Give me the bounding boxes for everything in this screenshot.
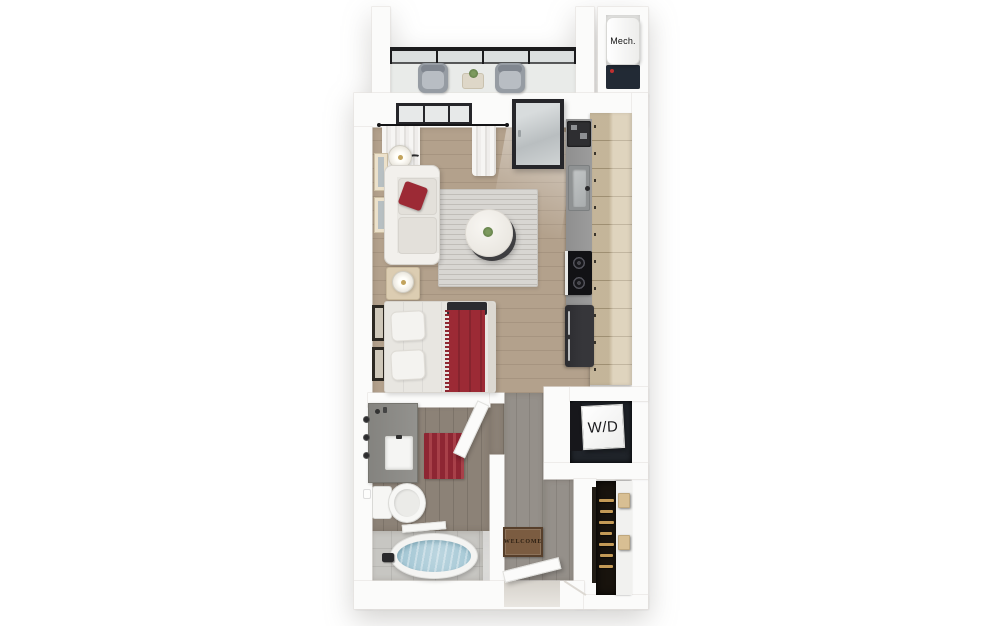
toilet-bowl bbox=[388, 483, 426, 523]
sink-faucet bbox=[396, 435, 402, 439]
stove-cooktop bbox=[565, 251, 592, 295]
appliance-detail bbox=[571, 125, 577, 130]
bathroom-sink bbox=[385, 436, 413, 470]
clothes-hanger bbox=[600, 532, 612, 535]
sink-basin bbox=[572, 169, 586, 207]
sofa-arm bbox=[385, 253, 439, 264]
coffee-maker bbox=[567, 121, 591, 147]
window-mullion bbox=[448, 106, 450, 122]
railing-post bbox=[574, 47, 576, 64]
wall bbox=[490, 393, 504, 403]
kitchen-sink bbox=[568, 165, 590, 211]
sink-faucet bbox=[585, 186, 590, 191]
welcome-mat: WELCOME bbox=[503, 527, 543, 557]
storage-box bbox=[618, 493, 630, 508]
sofa-arm bbox=[385, 166, 439, 177]
clothes-hanger bbox=[599, 521, 614, 524]
bathroom-vanity bbox=[368, 403, 418, 483]
bathtub bbox=[390, 533, 478, 579]
closet-door-gap bbox=[592, 487, 596, 583]
front-door-threshold bbox=[504, 581, 560, 607]
chair-seat-cushion bbox=[422, 71, 444, 89]
door-handle bbox=[518, 130, 521, 137]
wall-fixture bbox=[364, 417, 369, 422]
bathroom-door-threshold bbox=[490, 403, 504, 455]
bed-pillow bbox=[390, 349, 426, 381]
wall bbox=[544, 463, 648, 479]
toilet-seat bbox=[394, 489, 420, 517]
railing-post bbox=[528, 47, 530, 64]
sofa bbox=[384, 165, 440, 265]
bed-pillow bbox=[390, 310, 426, 342]
chair-seat-cushion bbox=[499, 71, 521, 89]
red-valve bbox=[610, 69, 614, 73]
bed-frame-edge bbox=[488, 302, 495, 392]
wall-fixture bbox=[364, 435, 369, 440]
refrigerator bbox=[565, 305, 594, 367]
kitchen-cabinets bbox=[590, 113, 632, 385]
window-mullion bbox=[423, 106, 425, 122]
table-lamp bbox=[392, 271, 414, 293]
welcome-mat-text: WELCOME bbox=[504, 539, 542, 545]
vanity-accessory bbox=[383, 407, 387, 413]
art-canvas bbox=[375, 350, 383, 378]
fridge-handle bbox=[568, 339, 570, 361]
railing-post bbox=[482, 47, 484, 64]
railing-post bbox=[390, 47, 392, 64]
sofa-back bbox=[385, 166, 397, 264]
curtain-rod-finial bbox=[377, 123, 381, 127]
sofa-cushion bbox=[398, 217, 437, 254]
wall bbox=[354, 127, 372, 609]
curtain-rod-finial bbox=[505, 123, 509, 127]
bath-water bbox=[397, 540, 471, 572]
window bbox=[396, 103, 472, 125]
washer-dryer-stack: W/D bbox=[581, 404, 625, 450]
railing-post bbox=[436, 47, 438, 64]
wd-label: W/D bbox=[587, 418, 619, 437]
clothes-hanger bbox=[599, 499, 614, 502]
red-throw-blanket bbox=[449, 310, 485, 392]
clothes-hanger bbox=[599, 565, 613, 568]
toilet-paper-holder bbox=[363, 489, 371, 499]
storage-box bbox=[618, 535, 630, 550]
bathtub-faucet bbox=[382, 553, 394, 562]
wall bbox=[584, 595, 648, 609]
fridge-handle bbox=[568, 311, 570, 335]
potted-plant bbox=[469, 69, 478, 78]
vanity-accessory bbox=[375, 409, 380, 414]
wall bbox=[570, 387, 648, 401]
lamp-bulb bbox=[401, 280, 406, 285]
bed bbox=[384, 301, 496, 393]
clothes-hanger bbox=[600, 554, 613, 557]
balcony-chair bbox=[495, 63, 525, 93]
wall bbox=[490, 455, 504, 581]
appliance-detail bbox=[580, 133, 587, 139]
balcony-door bbox=[512, 99, 564, 169]
clothes-hanger bbox=[600, 510, 613, 513]
mech-label: Mech. bbox=[610, 36, 636, 46]
balcony-chair bbox=[418, 63, 448, 93]
wall bbox=[632, 93, 648, 609]
floor-plan: Mech. bbox=[344, 5, 658, 613]
water-heater: Mech. bbox=[606, 17, 640, 65]
wall bbox=[372, 7, 390, 97]
wall-fixture bbox=[364, 453, 369, 458]
lamp-bulb bbox=[398, 155, 403, 160]
wall bbox=[576, 7, 594, 97]
table-plant bbox=[483, 227, 493, 237]
entry-closet bbox=[596, 481, 632, 595]
art-canvas bbox=[375, 308, 383, 338]
clothes-hanger bbox=[599, 543, 614, 546]
curtain-right bbox=[472, 126, 496, 176]
